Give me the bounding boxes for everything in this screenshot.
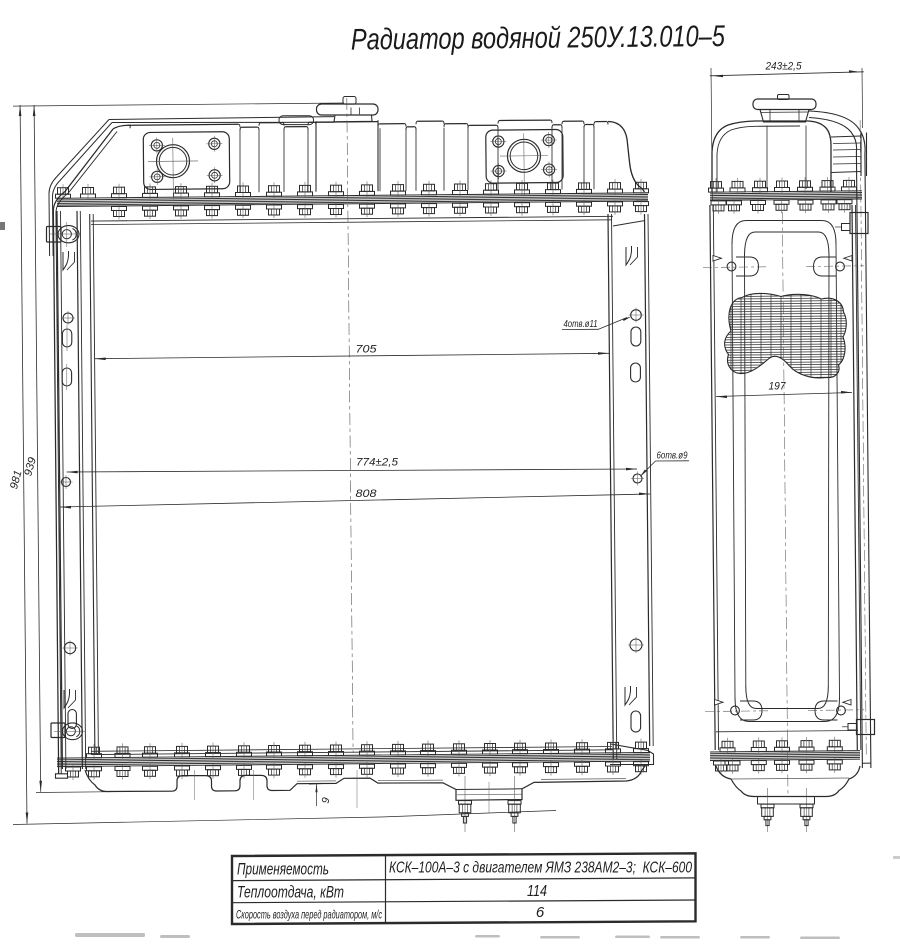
svg-text:Радиатор водяной 250У.13.010–5: Радиатор водяной 250У.13.010–5	[351, 20, 726, 57]
svg-text:6отв.ø9: 6отв.ø9	[657, 450, 688, 462]
svg-text:705: 705	[356, 344, 378, 356]
svg-text:774±2,5: 774±2,5	[356, 457, 399, 469]
svg-text:197: 197	[769, 381, 787, 393]
svg-text:114: 114	[527, 883, 547, 900]
svg-text:Теплоотдача, кВт: Теплоотдача, кВт	[237, 884, 344, 902]
svg-text:243±2,5: 243±2,5	[765, 61, 803, 73]
svg-text:Применяемость: Применяемость	[237, 861, 329, 879]
svg-text:КСК–100А–3 с двигателем ЯМЗ 23: КСК–100А–3 с двигателем ЯМЗ 238АМ2–3; КС…	[389, 860, 692, 877]
svg-text:808: 808	[356, 488, 378, 500]
svg-text:Скорость воздуха перед радиато: Скорость воздуха перед радиатором, м/с	[236, 908, 382, 922]
svg-text:6: 6	[536, 904, 545, 921]
svg-text:4отв.ø11: 4отв.ø11	[564, 318, 598, 330]
